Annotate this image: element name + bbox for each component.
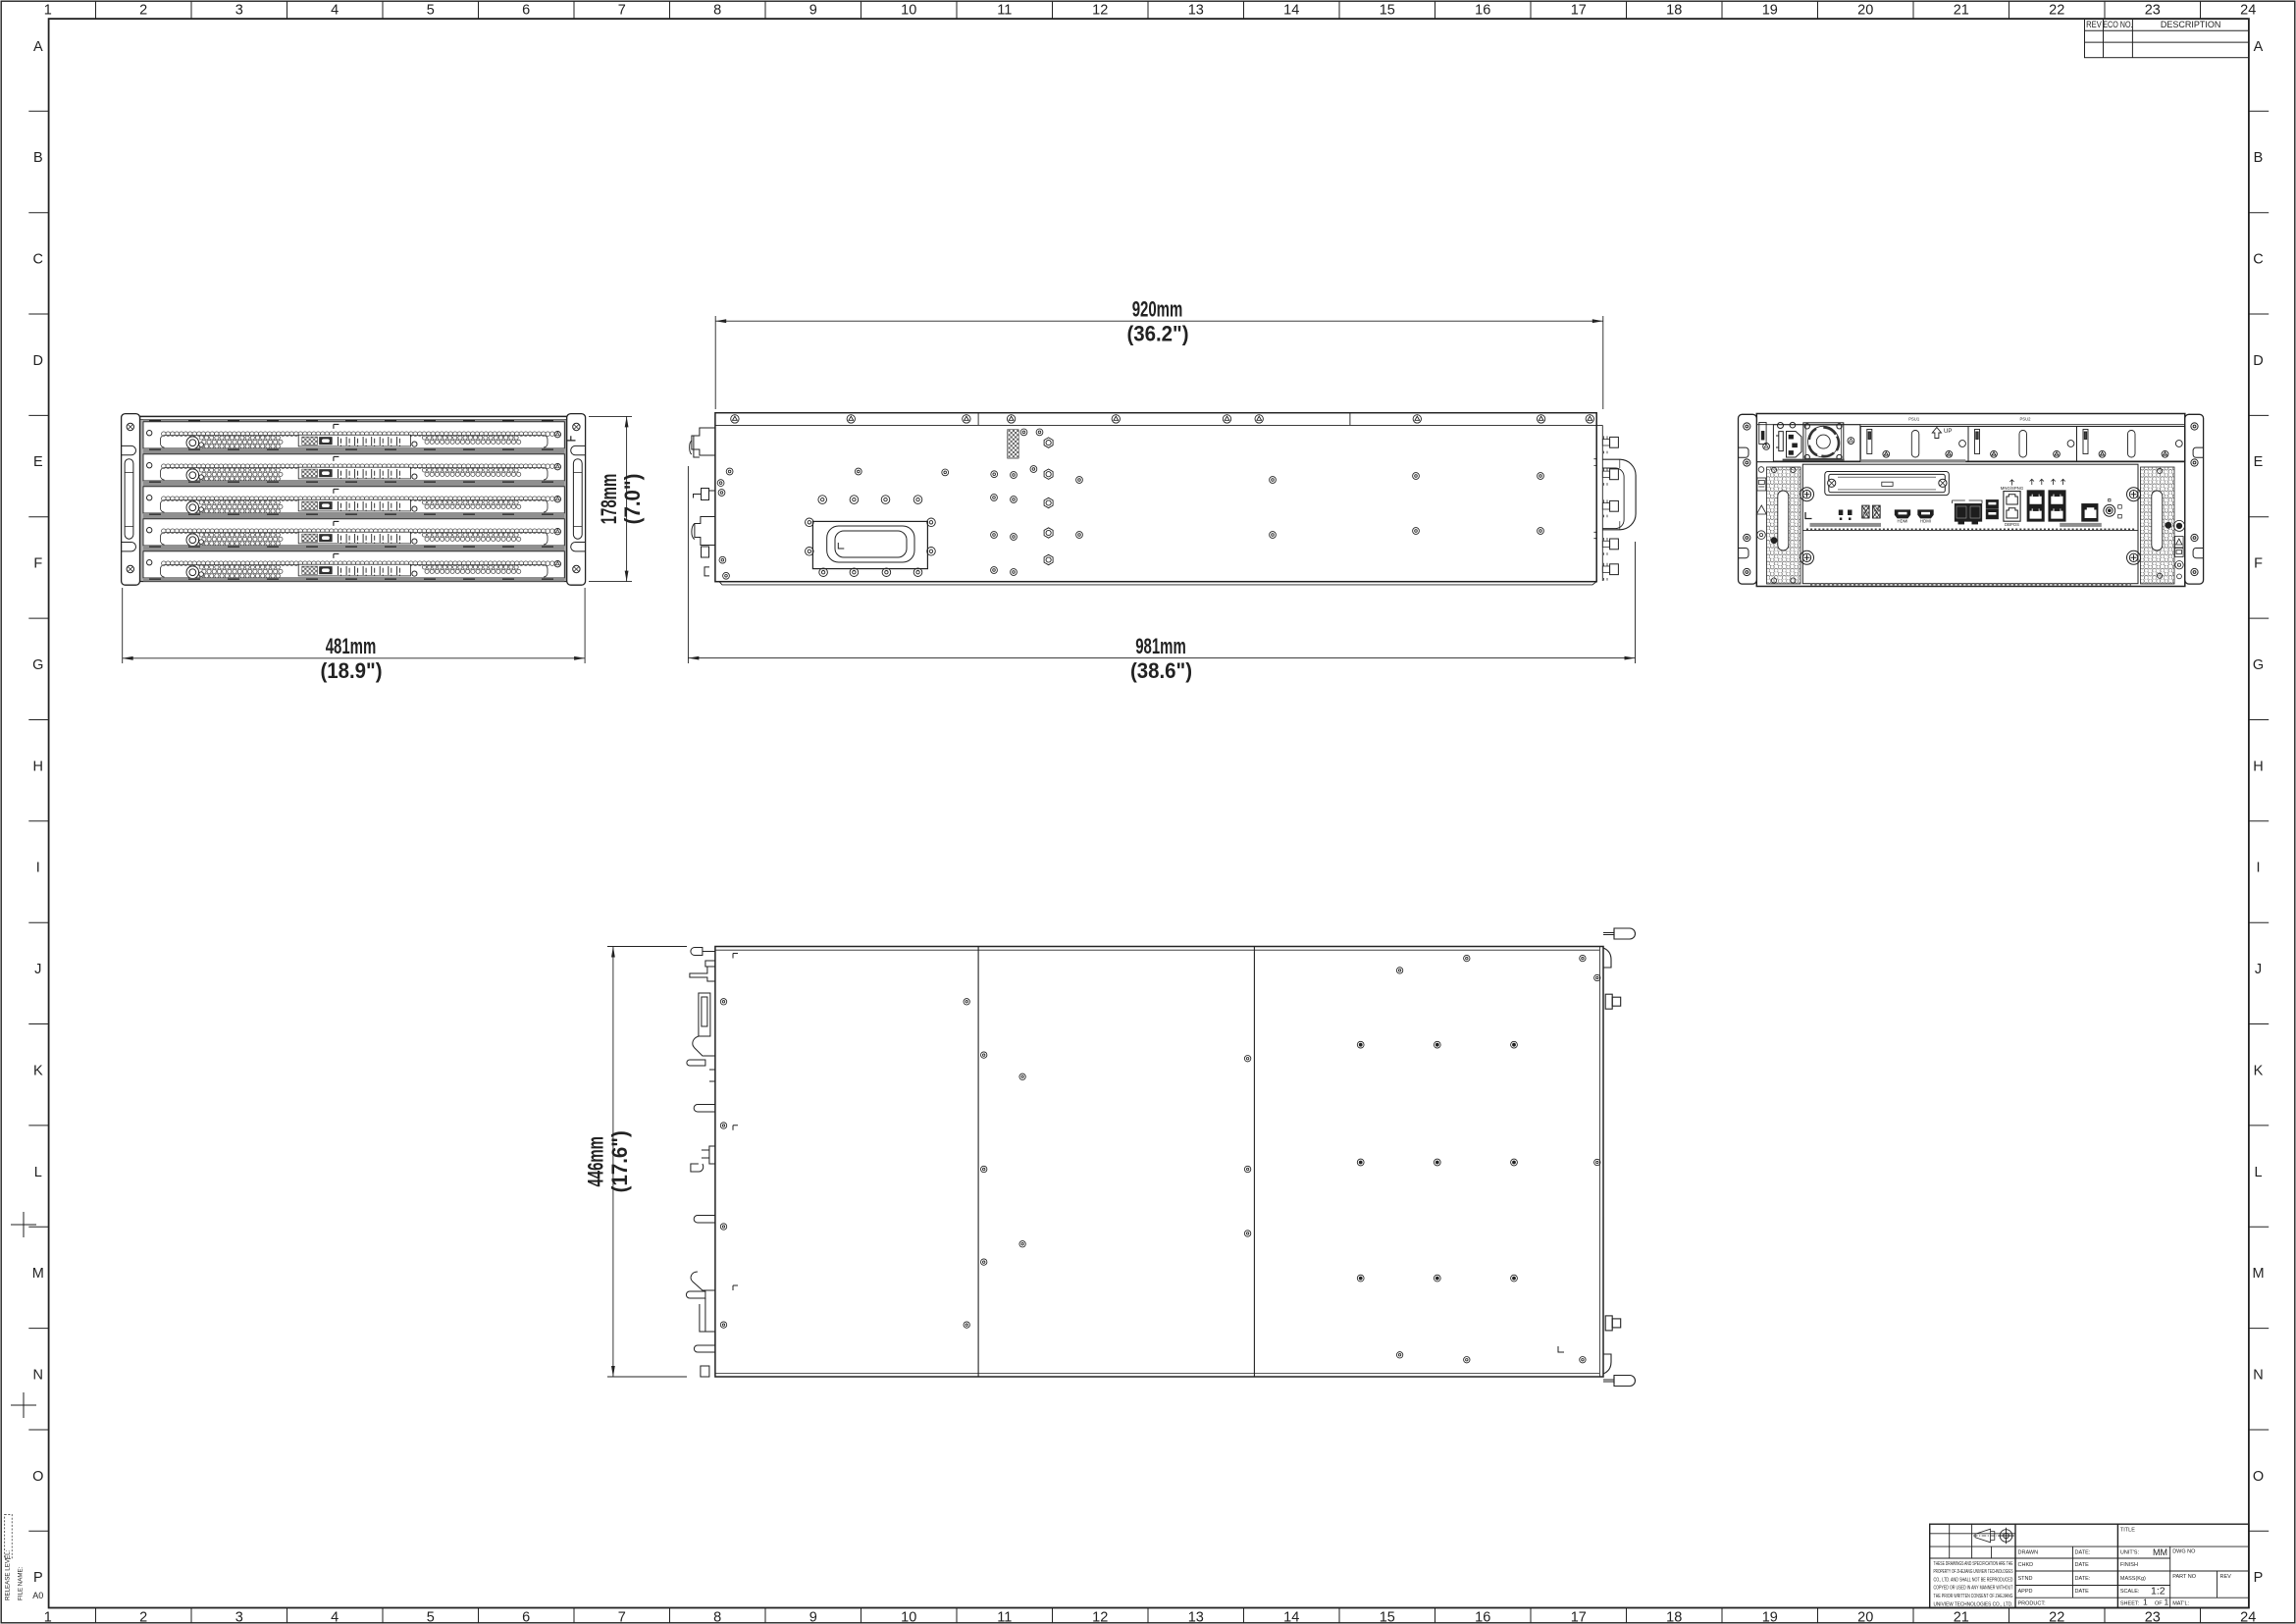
svg-text:HDMI: HDMI bbox=[1898, 519, 1908, 524]
svg-text:19: 19 bbox=[1762, 1610, 1778, 1624]
svg-text:D: D bbox=[2253, 353, 2263, 369]
svg-text:15: 15 bbox=[1380, 3, 1395, 19]
svg-text:6: 6 bbox=[522, 3, 530, 19]
svg-text:ECO NO.: ECO NO. bbox=[2103, 20, 2132, 29]
svg-text:3: 3 bbox=[235, 3, 243, 19]
svg-text:I: I bbox=[36, 861, 40, 876]
svg-text:APPD: APPD bbox=[2018, 1589, 2033, 1595]
svg-text:PSU1: PSU1 bbox=[1908, 417, 1920, 422]
svg-text:18: 18 bbox=[1666, 3, 1682, 19]
svg-text:B: B bbox=[2254, 150, 2264, 166]
svg-text:(18.9"): (18.9") bbox=[320, 658, 382, 683]
svg-text:MAT'L:: MAT'L: bbox=[2172, 1601, 2189, 1607]
svg-text:3: 3 bbox=[235, 1610, 243, 1624]
svg-text:10: 10 bbox=[901, 1610, 916, 1624]
svg-text:(17.6"): (17.6") bbox=[607, 1130, 632, 1192]
svg-text:21: 21 bbox=[1954, 3, 1969, 19]
svg-text:12: 12 bbox=[1092, 1610, 1108, 1624]
svg-text:UNIT'S:: UNIT'S: bbox=[2120, 1550, 2140, 1556]
svg-text:MASS(Kg): MASS(Kg) bbox=[2120, 1576, 2146, 1582]
svg-text:9: 9 bbox=[809, 3, 817, 19]
svg-text:E: E bbox=[2254, 454, 2264, 470]
svg-text:19: 19 bbox=[1762, 3, 1778, 19]
svg-text:I: I bbox=[2256, 861, 2260, 876]
svg-text:UP: UP bbox=[1944, 429, 1952, 435]
svg-text:DBPOS: DBPOS bbox=[2005, 522, 2019, 527]
svg-text:STND: STND bbox=[2018, 1576, 2033, 1582]
svg-text:20: 20 bbox=[1857, 3, 1873, 19]
svg-text:14: 14 bbox=[1283, 3, 1299, 19]
svg-text:N: N bbox=[2253, 1368, 2263, 1384]
svg-text:4: 4 bbox=[331, 1610, 339, 1624]
svg-text:5: 5 bbox=[427, 3, 435, 19]
svg-text:L: L bbox=[34, 1165, 42, 1180]
svg-text:11: 11 bbox=[997, 3, 1012, 19]
svg-text:A0: A0 bbox=[32, 1591, 43, 1600]
svg-text:DESCRIPTION: DESCRIPTION bbox=[2161, 20, 2221, 29]
svg-text:E: E bbox=[33, 454, 43, 470]
svg-text:COPYED OR USED IN ANY MANNER W: COPYED OR USED IN ANY MANNER WITHOUT bbox=[1934, 1586, 2013, 1592]
svg-text:1:2: 1:2 bbox=[2151, 1586, 2166, 1598]
svg-text:CHKD: CHKD bbox=[2018, 1562, 2034, 1568]
svg-text:8: 8 bbox=[713, 3, 721, 19]
svg-text:C: C bbox=[2253, 252, 2263, 268]
svg-text:DATE: DATE bbox=[2075, 1562, 2090, 1568]
svg-text:K: K bbox=[33, 1063, 43, 1078]
svg-text:PRODUCT:: PRODUCT: bbox=[2018, 1601, 2047, 1607]
svg-text:DATE:: DATE: bbox=[2075, 1550, 2091, 1556]
svg-text:REV: REV bbox=[2086, 20, 2102, 30]
svg-text:7: 7 bbox=[618, 3, 626, 19]
svg-text:A: A bbox=[33, 39, 43, 55]
svg-text:16: 16 bbox=[1475, 1610, 1490, 1624]
svg-text:DATE:: DATE: bbox=[2075, 1576, 2091, 1582]
svg-text:24: 24 bbox=[2240, 1610, 2256, 1624]
svg-text:7: 7 bbox=[618, 1610, 626, 1624]
svg-text:G: G bbox=[2253, 657, 2264, 673]
svg-text:12: 12 bbox=[1092, 3, 1108, 19]
svg-text:4: 4 bbox=[331, 3, 339, 19]
svg-text:1: 1 bbox=[2143, 1598, 2148, 1607]
svg-text:981mm: 981mm bbox=[1135, 634, 1186, 658]
svg-text:(36.2"): (36.2") bbox=[1126, 322, 1188, 346]
svg-text:M: M bbox=[32, 1266, 44, 1282]
svg-text:13: 13 bbox=[1188, 3, 1204, 19]
svg-text:K: K bbox=[2254, 1063, 2264, 1078]
svg-text:DWG NO: DWG NO bbox=[2172, 1549, 2196, 1555]
svg-text:9: 9 bbox=[809, 1610, 817, 1624]
svg-text:24: 24 bbox=[2240, 3, 2256, 19]
svg-text:2: 2 bbox=[139, 1610, 147, 1624]
svg-text:8: 8 bbox=[713, 1610, 721, 1624]
svg-text:B: B bbox=[33, 150, 43, 166]
svg-text:O: O bbox=[2253, 1469, 2264, 1485]
svg-text:G: G bbox=[32, 657, 43, 673]
svg-text:6: 6 bbox=[522, 1610, 530, 1624]
svg-text:SCALE:: SCALE: bbox=[2120, 1589, 2140, 1595]
svg-text:13: 13 bbox=[1188, 1610, 1204, 1624]
svg-text:F: F bbox=[2254, 556, 2263, 572]
svg-text:481mm: 481mm bbox=[326, 634, 377, 658]
svg-text:5: 5 bbox=[427, 1610, 435, 1624]
svg-text:F: F bbox=[33, 556, 42, 572]
svg-text:O: O bbox=[32, 1469, 43, 1485]
svg-text:17: 17 bbox=[1571, 3, 1587, 19]
svg-text:A: A bbox=[2254, 39, 2264, 55]
svg-text:18: 18 bbox=[1666, 1610, 1682, 1624]
svg-text:J: J bbox=[2255, 962, 2262, 977]
svg-text:PROPERTY OF ZHEJIANG UNIVIEW T: PROPERTY OF ZHEJIANG UNIVIEW TECHNOLOGIE… bbox=[1934, 1569, 2013, 1575]
svg-text:178mm: 178mm bbox=[597, 474, 621, 525]
svg-text:J: J bbox=[34, 962, 41, 977]
svg-text:2: 2 bbox=[139, 3, 147, 19]
svg-text:D: D bbox=[33, 353, 43, 369]
svg-text:23: 23 bbox=[2145, 3, 2161, 19]
svg-text:PSU2: PSU2 bbox=[2020, 417, 2032, 422]
svg-text:THESE DRAWINGS AND SPECIFICATI: THESE DRAWINGS AND SPECIFICATION ARE THE bbox=[1934, 1561, 2013, 1567]
svg-text:10: 10 bbox=[901, 3, 916, 19]
svg-text:FINISH: FINISH bbox=[2120, 1562, 2138, 1568]
svg-text:H: H bbox=[33, 759, 43, 774]
svg-text:H: H bbox=[2253, 759, 2263, 774]
svg-text:DRAWN: DRAWN bbox=[2018, 1550, 2039, 1556]
svg-text:THE PRIOR WRITTEN CONSENT OF Z: THE PRIOR WRITTEN CONSENT OF ZHEJIANG bbox=[1934, 1594, 2013, 1599]
svg-text:UNIVIEW TECHNOLOGIES CO., LTD.: UNIVIEW TECHNOLOGIES CO., LTD. bbox=[1934, 1601, 2013, 1607]
svg-text:L: L bbox=[2254, 1165, 2262, 1180]
svg-text:M: M bbox=[2252, 1266, 2264, 1282]
svg-text:REV: REV bbox=[2220, 1574, 2232, 1580]
svg-text:1: 1 bbox=[2165, 1598, 2169, 1607]
svg-text:P: P bbox=[33, 1570, 43, 1586]
svg-text:CO., LTD. AND SHALL NOT BE REP: CO., LTD. AND SHALL NOT BE REPRODUCED bbox=[1934, 1577, 2013, 1583]
svg-text:21: 21 bbox=[1954, 1610, 1969, 1624]
svg-text:1: 1 bbox=[44, 1610, 52, 1624]
svg-text:23: 23 bbox=[2145, 1610, 2161, 1624]
svg-text:HDMI: HDMI bbox=[1920, 519, 1931, 524]
svg-text:920mm: 920mm bbox=[1132, 297, 1183, 322]
svg-text:1: 1 bbox=[44, 3, 52, 19]
svg-text:15: 15 bbox=[1380, 1610, 1395, 1624]
svg-text:(38.6"): (38.6") bbox=[1130, 658, 1192, 683]
svg-text:22: 22 bbox=[2049, 3, 2064, 19]
svg-text:22: 22 bbox=[2049, 1610, 2064, 1624]
svg-text:16: 16 bbox=[1475, 3, 1490, 19]
svg-text:20: 20 bbox=[1857, 1610, 1873, 1624]
svg-text:SHEET:: SHEET: bbox=[2120, 1601, 2140, 1607]
svg-text:MM: MM bbox=[2153, 1547, 2167, 1557]
svg-text:P: P bbox=[2254, 1570, 2264, 1586]
svg-text:PART NO: PART NO bbox=[2172, 1574, 2197, 1580]
svg-text:17: 17 bbox=[1571, 1610, 1587, 1624]
svg-text:TITLE: TITLE bbox=[2120, 1528, 2135, 1534]
svg-text:FILE NAME:: FILE NAME: bbox=[18, 1566, 25, 1600]
svg-text:OF: OF bbox=[2155, 1601, 2163, 1607]
svg-text:C: C bbox=[33, 252, 43, 268]
svg-text:N: N bbox=[33, 1368, 43, 1384]
svg-text:(7.0"): (7.0") bbox=[620, 474, 645, 525]
svg-text:DATE: DATE bbox=[2075, 1589, 2090, 1595]
svg-text:RELEASE LEVEL:: RELEASE LEVEL: bbox=[5, 1549, 12, 1600]
svg-text:MNG/SPNG: MNG/SPNG bbox=[2001, 486, 2024, 491]
svg-text:446mm: 446mm bbox=[584, 1136, 608, 1187]
svg-text:11: 11 bbox=[997, 1610, 1012, 1624]
svg-text:14: 14 bbox=[1283, 1610, 1299, 1624]
